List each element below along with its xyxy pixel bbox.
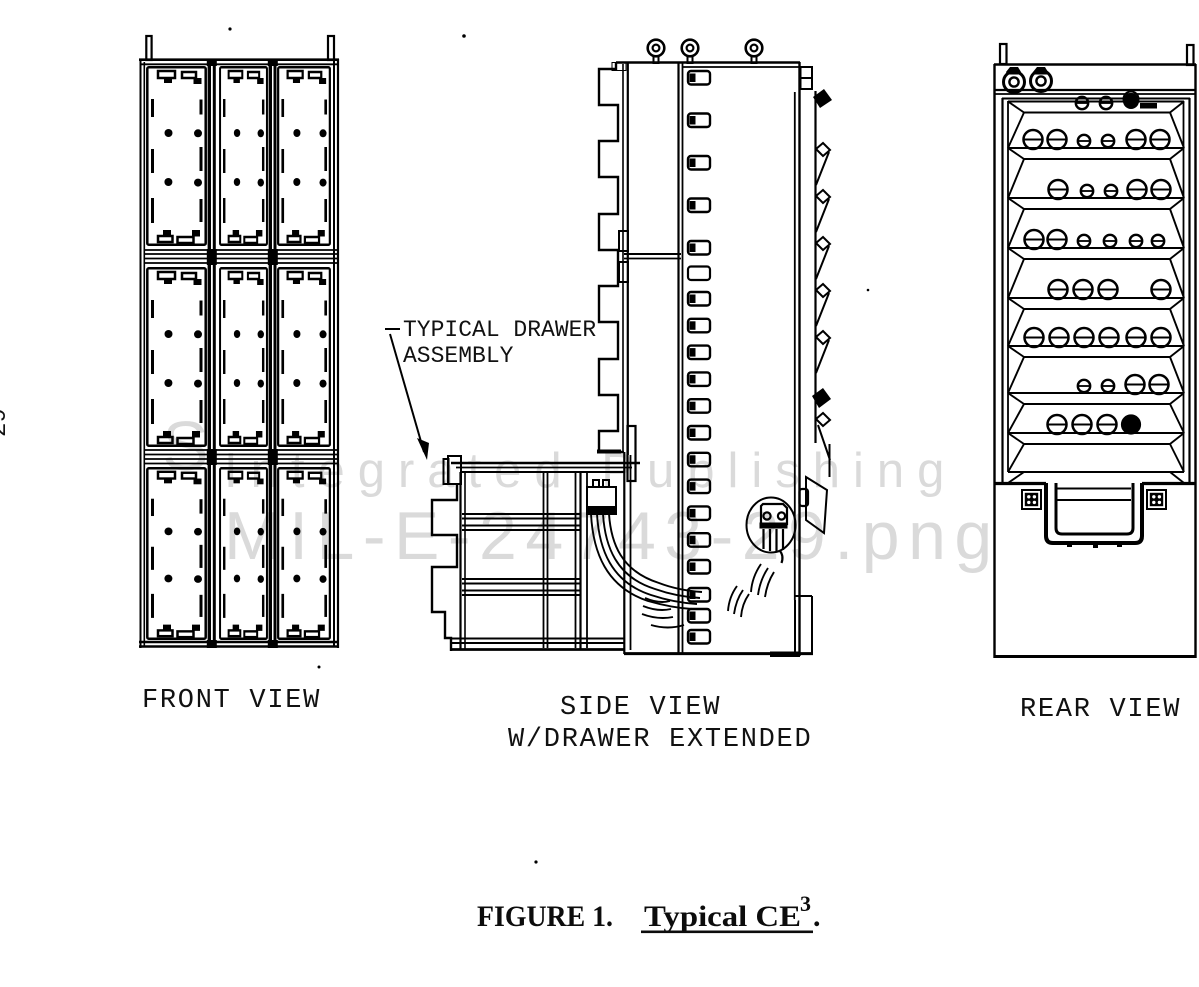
svg-text:29: 29 bbox=[0, 408, 13, 437]
svg-text:FRONT VIEW: FRONT VIEW bbox=[142, 686, 321, 716]
svg-text:SIDE VIEW: SIDE VIEW bbox=[560, 693, 721, 723]
svg-text:ASSEMBLY: ASSEMBLY bbox=[403, 343, 514, 369]
svg-text:REAR VIEW: REAR VIEW bbox=[1020, 695, 1181, 725]
svg-text:Typical CE: Typical CE bbox=[644, 900, 801, 933]
svg-text:FIGURE 1.: FIGURE 1. bbox=[477, 900, 613, 933]
svg-text:.: . bbox=[813, 900, 821, 933]
svg-text:W/DRAWER EXTENDED: W/DRAWER EXTENDED bbox=[508, 725, 812, 755]
svg-text:TYPICAL DRAWER: TYPICAL DRAWER bbox=[403, 317, 596, 343]
svg-text:3: 3 bbox=[800, 891, 811, 916]
